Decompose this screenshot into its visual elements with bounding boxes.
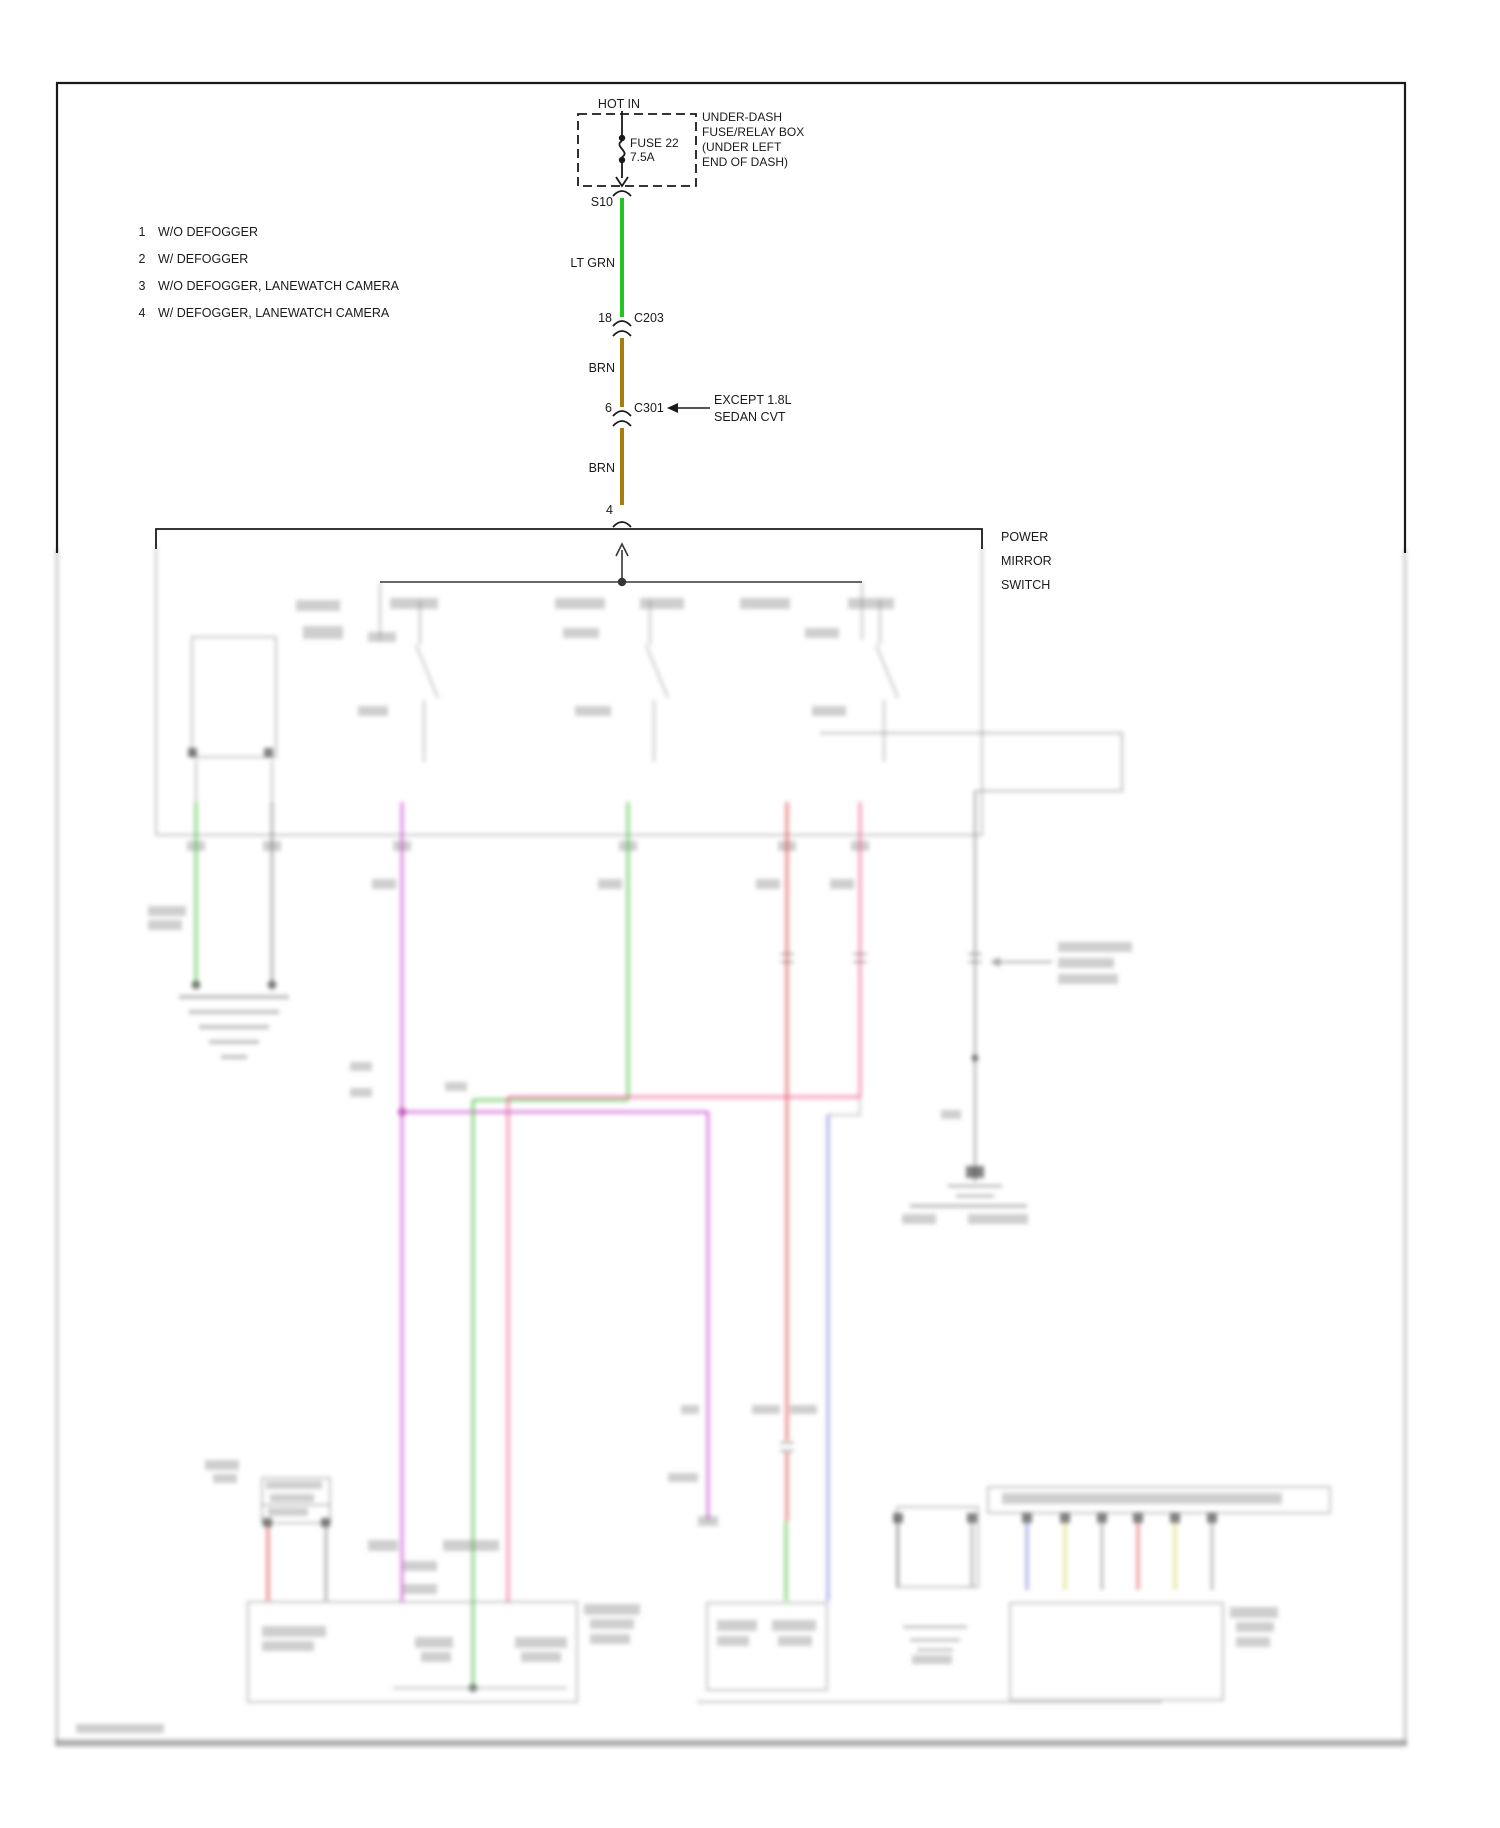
legend-num-1: 1 <box>139 225 146 239</box>
except-note-line2: SEDAN CVT <box>714 410 786 424</box>
switch-pin-blobs <box>187 841 869 851</box>
c301-pin: 6 <box>605 401 612 415</box>
faded-diagram-region <box>55 547 1407 1744</box>
except-note-line1: EXCEPT 1.8L <box>714 393 792 407</box>
c203-pin: 18 <box>598 311 612 325</box>
switch-label-blobs <box>296 598 894 716</box>
splice-connector-arc <box>613 191 631 196</box>
switch-sub-box <box>192 637 276 757</box>
c301-connector-arcs <box>613 411 631 426</box>
legend: 1 W/O DEFOGGER 2 W/ DEFOGGER 3 W/O DEFOG… <box>139 225 400 320</box>
right-ground-assembly <box>902 1055 1028 1225</box>
fuse-symbol <box>616 111 628 186</box>
c203-label: C203 <box>634 311 664 325</box>
arrow-down-icon <box>616 177 628 186</box>
faded-wires <box>398 733 1123 1693</box>
switch-feed <box>380 544 862 586</box>
hot-in-label: HOT IN <box>598 97 640 111</box>
legend-text-3: W/O DEFOGGER, LANEWATCH CAMERA <box>158 279 400 293</box>
inline-connector-row <box>780 942 1132 984</box>
diagram-canvas: 1 W/O DEFOGGER 2 W/ DEFOGGER 3 W/O DEFOG… <box>0 0 1500 1828</box>
fuse-box-note-line2: FUSE/RELAY BOX <box>702 125 804 139</box>
fuse-box-note-line3: (UNDER LEFT <box>702 140 782 154</box>
switch-label-line3: SWITCH <box>1001 578 1050 592</box>
switch-pin-label: 4 <box>606 503 613 517</box>
legend-num-2: 2 <box>139 252 146 266</box>
center-mirror-box <box>707 1603 827 1690</box>
left-ground-assembly <box>148 760 289 1057</box>
right-mirror-box <box>1010 1603 1223 1700</box>
except-note: EXCEPT 1.8L SEDAN CVT <box>667 393 792 424</box>
lower-center-cluster <box>697 1507 1162 1702</box>
switch-pin-connector-arc <box>613 522 631 527</box>
fuse-label: FUSE 22 <box>630 136 679 150</box>
fuse-box-note: UNDER-DASH FUSE/RELAY BOX (UNDER LEFT EN… <box>702 110 804 169</box>
brn-label-2: BRN <box>589 461 615 475</box>
switch-label-line1: POWER <box>1001 530 1048 544</box>
crisp-diagram-layer: 1 W/O DEFOGGER 2 W/ DEFOGGER 3 W/O DEFOG… <box>57 83 1405 592</box>
c301-label: C301 <box>634 401 664 415</box>
switch-internals <box>187 582 898 851</box>
legend-text-2: W/ DEFOGGER <box>158 252 248 266</box>
fuse-box-note-line1: UNDER-DASH <box>702 110 782 124</box>
lower-left-cluster <box>205 1460 640 1702</box>
switch-label-line2: MIRROR <box>1001 554 1052 568</box>
splice-label: S10 <box>591 195 613 209</box>
legend-num-3: 3 <box>139 279 146 293</box>
lower-right-cluster <box>988 1487 1330 1700</box>
fuse-box-note-line4: END OF DASH) <box>702 155 788 169</box>
brn-label-1: BRN <box>589 361 615 375</box>
switch-blades <box>416 600 898 762</box>
power-mirror-switch-box <box>156 547 982 835</box>
legend-text-4: W/ DEFOGGER, LANEWATCH CAMERA <box>158 306 390 320</box>
faded-footer-text-blob <box>76 1724 164 1733</box>
legend-num-4: 4 <box>139 306 146 320</box>
c203-connector-arcs <box>613 321 631 336</box>
switch-box-top-edge <box>156 529 982 549</box>
wire-color-label-blobs <box>350 879 961 1482</box>
wiring-diagram-page: 1 W/O DEFOGGER 2 W/ DEFOGGER 3 W/O DEFOG… <box>0 0 1500 1828</box>
fuse-amp-label: 7.5A <box>630 150 655 164</box>
legend-text-1: W/O DEFOGGER <box>158 225 258 239</box>
lt-grn-label: LT GRN <box>570 256 615 270</box>
power-mirror-switch-label: POWER MIRROR SWITCH <box>1001 530 1052 592</box>
